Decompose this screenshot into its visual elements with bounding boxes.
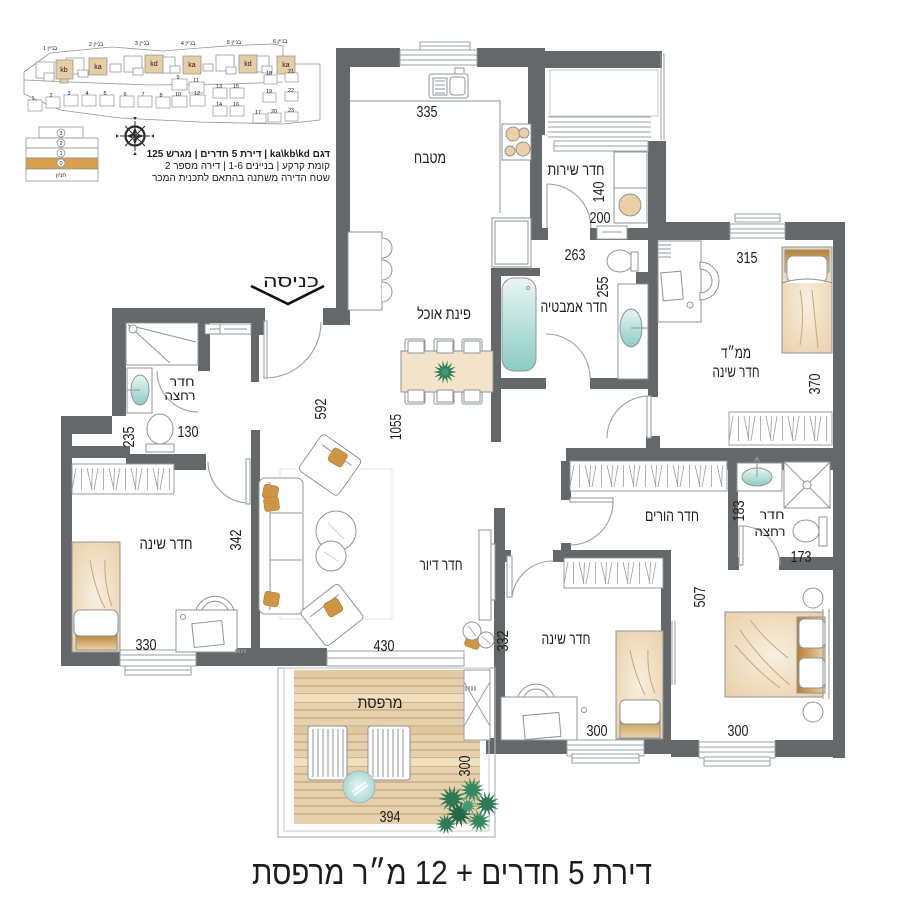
svg-text:1: 1 (31, 96, 34, 102)
svg-text:מרפסת: מרפסת (358, 695, 403, 712)
svg-text:21: 21 (288, 69, 294, 75)
svg-text:חדר שינה: חדר שינה (542, 631, 591, 648)
svg-text:2: 2 (49, 93, 52, 99)
svg-text:200: 200 (590, 210, 611, 227)
svg-text:ממ״ד: ממ״ד (721, 345, 751, 362)
svg-text:11: 11 (193, 78, 199, 84)
svg-text:507: 507 (692, 587, 709, 608)
svg-text:370: 370 (807, 373, 824, 394)
svg-text:בניין 1: בניין 1 (43, 46, 58, 52)
svg-text:רחצה: רחצה (165, 389, 196, 403)
svg-text:16: 16 (233, 102, 239, 108)
svg-text:20: 20 (271, 109, 277, 115)
svg-text:שטח הדירה משתנה בהתאם לתכנית ה: שטח הדירה משתנה בהתאם לתכנית המכר (152, 172, 330, 184)
svg-text:פינת אוכל: פינת אוכל (417, 306, 471, 323)
svg-text:235: 235 (121, 427, 138, 448)
svg-text:1: 1 (59, 151, 62, 157)
svg-text:חדר: חדר (170, 375, 195, 389)
svg-text:130: 130 (178, 424, 199, 441)
svg-text:דירת 5 חדרים + 12 מ״ר מרפסת: דירת 5 חדרים + 12 מ״ר מרפסת (252, 854, 652, 891)
svg-text:22: 22 (288, 88, 294, 94)
svg-text:8: 8 (159, 93, 162, 99)
svg-text:430: 430 (374, 638, 395, 655)
svg-text:7: 7 (141, 92, 144, 98)
svg-text:13: 13 (216, 84, 222, 90)
svg-text:חדר שינה: חדר שינה (140, 536, 193, 553)
svg-text:23: 23 (288, 108, 294, 114)
svg-text:10: 10 (175, 92, 181, 98)
svg-text:0: 0 (59, 161, 62, 167)
svg-text:335: 335 (417, 104, 438, 121)
svg-text:14: 14 (216, 102, 222, 108)
svg-text:חדר שירות: חדר שירות (548, 162, 605, 179)
svg-text:בניין 4: בניין 4 (181, 41, 196, 47)
svg-text:חדר הורים: חדר הורים (645, 508, 699, 525)
svg-text:ka: ka (94, 64, 102, 71)
svg-text:kb: kb (60, 67, 68, 74)
svg-text:בניין 6: בניין 6 (273, 39, 288, 45)
svg-text:9: 9 (176, 75, 179, 81)
svg-text:592: 592 (313, 399, 330, 420)
svg-text:בניין 2: בניין 2 (89, 42, 104, 48)
svg-text:3: 3 (59, 131, 62, 137)
svg-text:חדר: חדר (760, 508, 785, 522)
svg-text:315: 315 (737, 250, 758, 267)
svg-text:5: 5 (103, 91, 106, 97)
svg-text:4: 4 (85, 91, 88, 97)
svg-text:כניסה: כניסה (263, 273, 319, 291)
svg-text:394: 394 (380, 809, 401, 826)
svg-text:19: 19 (266, 89, 272, 95)
svg-text:מטבח: מטבח (414, 150, 446, 167)
svg-text:2: 2 (59, 141, 62, 147)
svg-text:17: 17 (255, 110, 261, 116)
svg-text:חדר אמבטיה: חדר אמבטיה (541, 299, 608, 316)
svg-text:חדר שינה: חדר שינה (713, 364, 760, 381)
svg-text:300: 300 (587, 723, 608, 740)
svg-text:255: 255 (595, 277, 612, 298)
svg-text:1055: 1055 (388, 414, 405, 440)
svg-text:15: 15 (233, 84, 239, 90)
svg-text:140: 140 (591, 181, 608, 202)
svg-text:330: 330 (136, 637, 157, 654)
svg-text:kd: kd (244, 61, 252, 68)
svg-text:kd: kd (150, 61, 158, 68)
svg-text:ka: ka (188, 62, 196, 69)
svg-text:332: 332 (495, 631, 512, 652)
svg-text:חניון: חניון (56, 173, 66, 179)
svg-text:בניין 5: בניין 5 (227, 40, 242, 46)
svg-text:342: 342 (228, 530, 245, 551)
svg-text:דגם ka\kb\kd | דירת 5 חדרים |: דגם ka\kb\kd | דירת 5 חדרים | מגרש 125 (147, 149, 331, 160)
svg-text:300: 300 (728, 723, 749, 740)
svg-text:ka: ka (282, 62, 290, 69)
svg-text:263: 263 (565, 247, 586, 264)
svg-text:173: 173 (791, 549, 812, 566)
svg-text:12: 12 (194, 91, 200, 97)
svg-text:קומת קרקע | בניינים 1-6 | דירה: קומת קרקע | בניינים 1-6 | דירה מספר 2 (165, 161, 330, 172)
svg-text:3: 3 (67, 91, 70, 97)
svg-text:300: 300 (457, 755, 474, 776)
svg-text:רחצה: רחצה (755, 525, 786, 539)
svg-text:בניין 3: בניין 3 (135, 41, 150, 47)
svg-text:183: 183 (731, 501, 748, 522)
svg-text:חדר דיור: חדר דיור (420, 557, 463, 574)
svg-text:18: 18 (266, 71, 272, 77)
svg-text:6: 6 (123, 92, 126, 98)
